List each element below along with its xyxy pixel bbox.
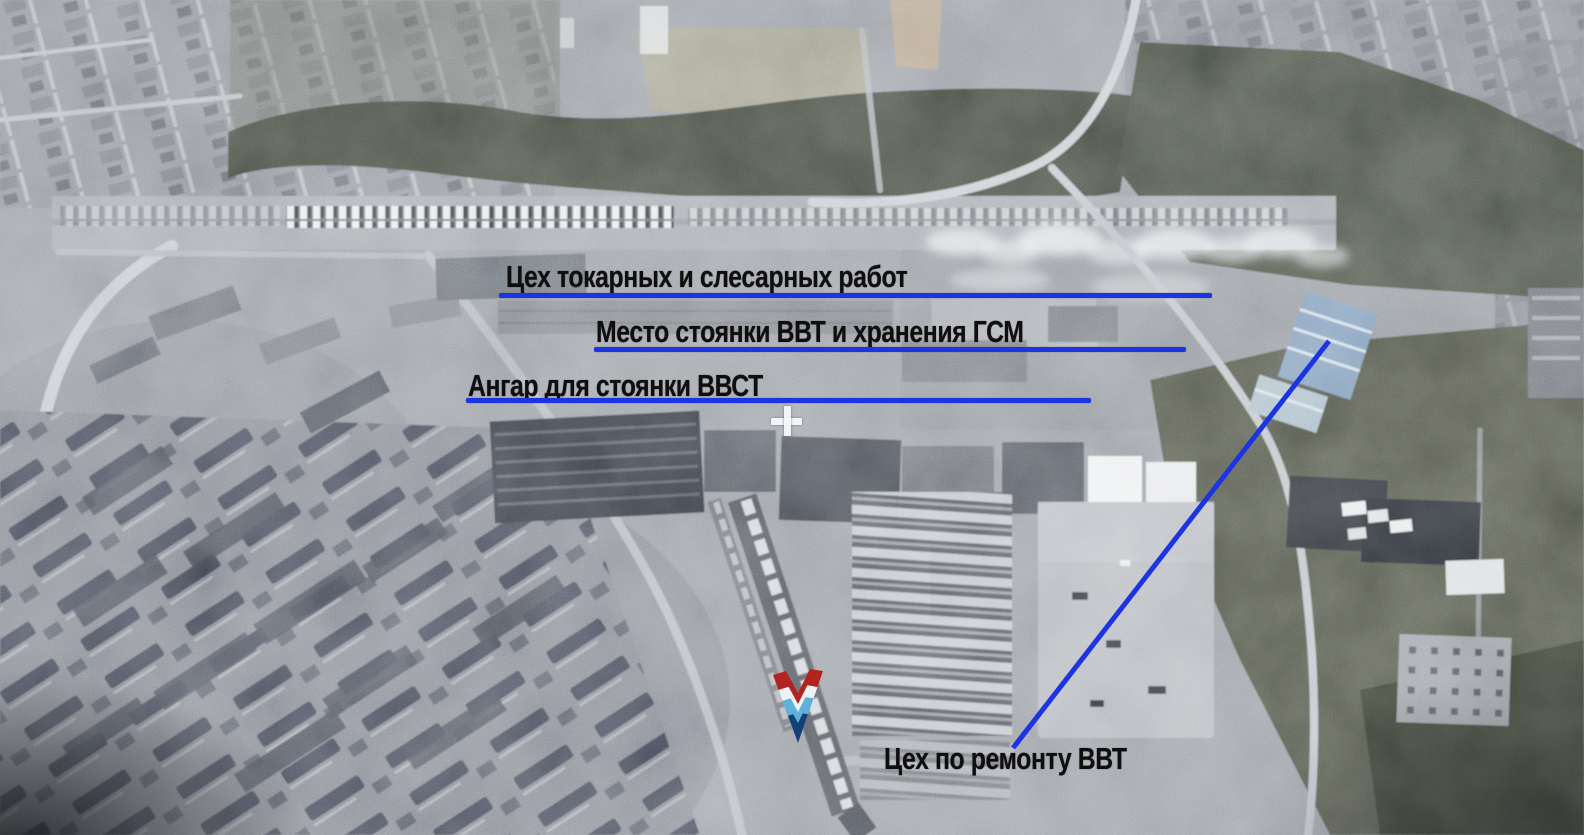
annotated-satellite-view: Цех токарных и слесарных работ Место сто… — [0, 0, 1584, 835]
vignette-overlay — [0, 0, 1584, 835]
